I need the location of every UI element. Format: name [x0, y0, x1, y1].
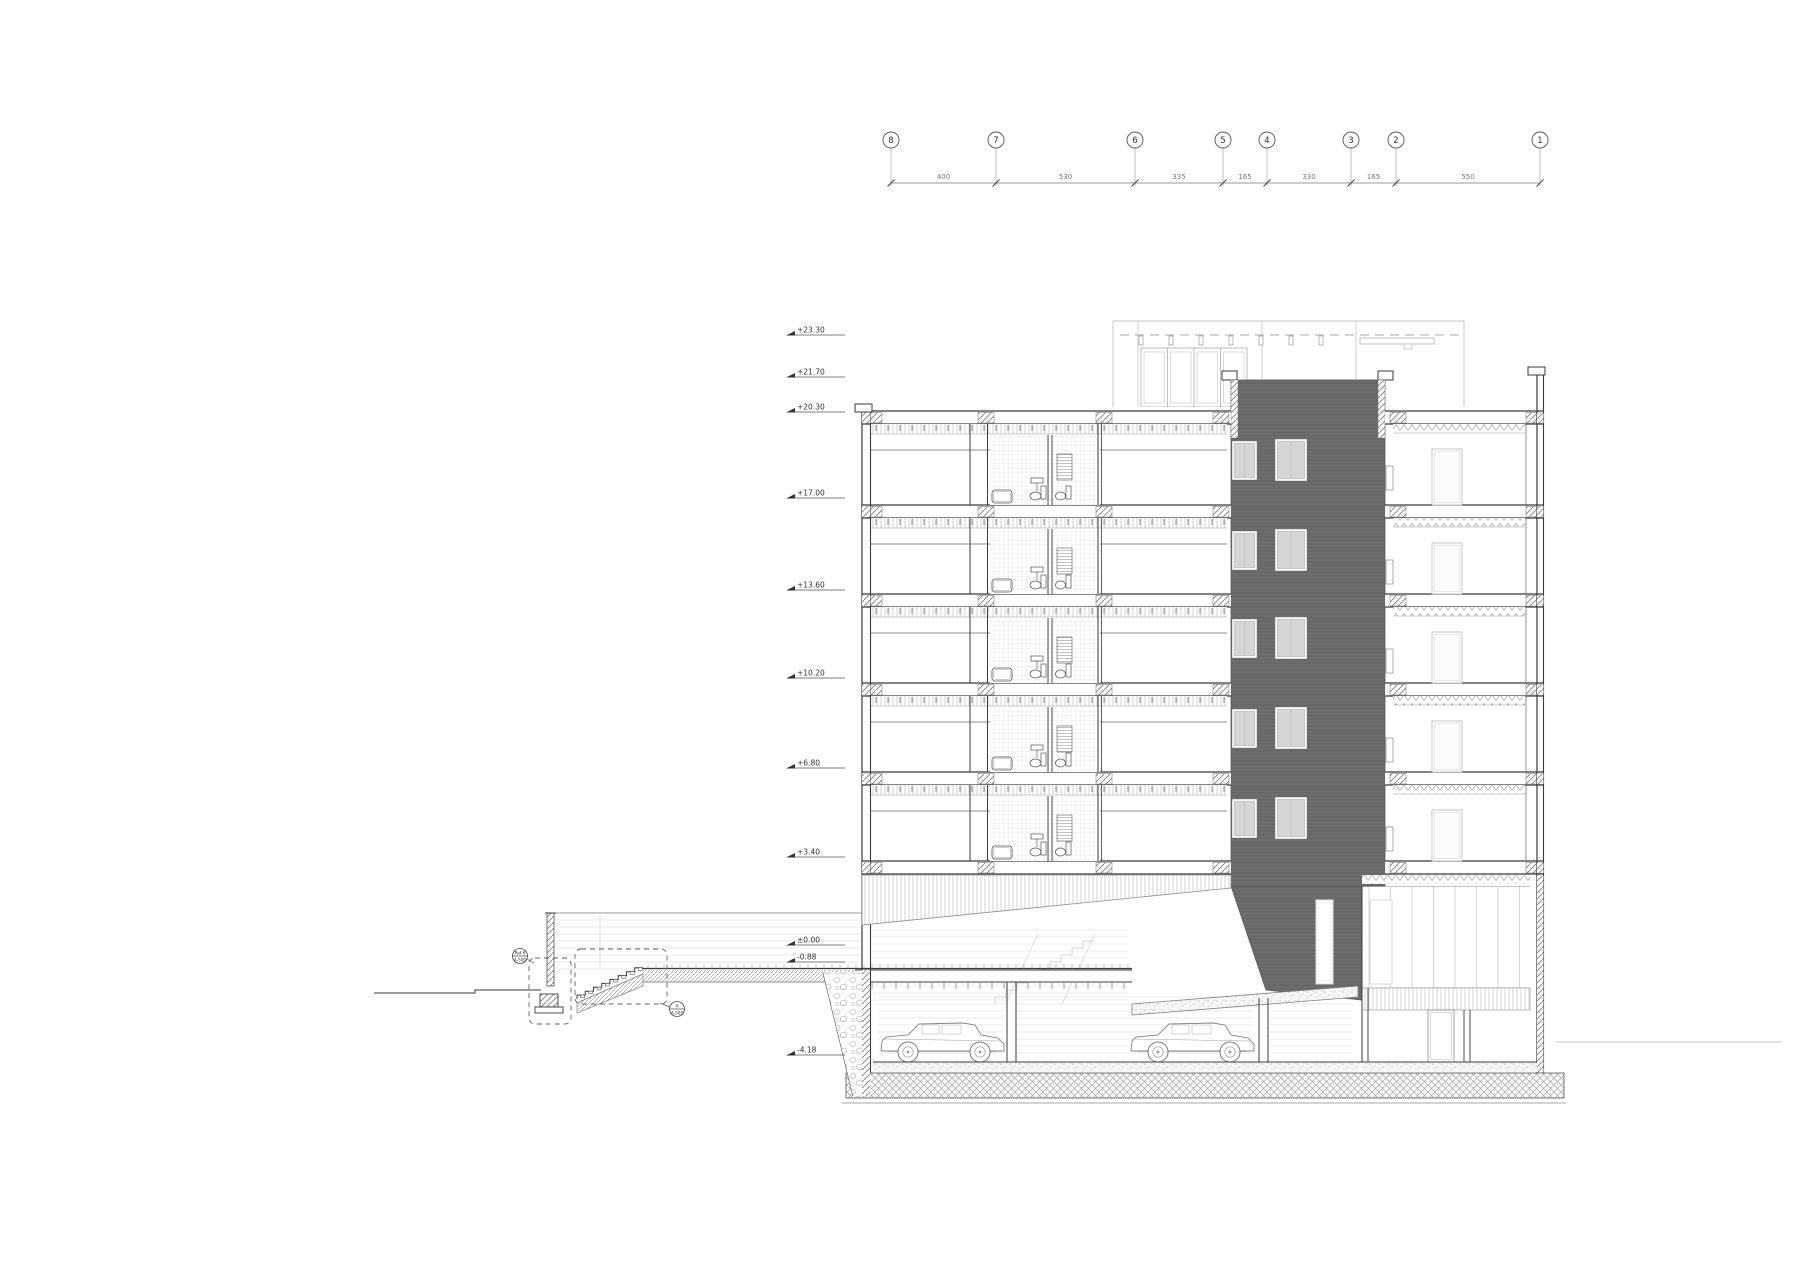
post-footing: [540, 994, 558, 1007]
elevation-label: +21.70: [797, 368, 825, 377]
level-arrow: [786, 586, 795, 591]
level-arrow: [786, 674, 795, 679]
slab-beam: [1213, 774, 1229, 785]
roof-railing-post: [1289, 336, 1293, 345]
toilet: [1041, 753, 1046, 766]
roof-railing-post: [1259, 336, 1263, 345]
level-arrow: [786, 408, 795, 413]
slab-beam: [1213, 507, 1229, 518]
washbasin: [1031, 745, 1043, 750]
basement-grille-band: [1362, 988, 1530, 1010]
marker-ref-top: A: [676, 1004, 679, 1009]
level-arrow: [786, 331, 795, 336]
parapet-cap: [855, 404, 872, 412]
radiator: [1057, 454, 1072, 480]
toilet: [1066, 575, 1071, 588]
level-arrow: [786, 941, 795, 946]
foundation-slab: [846, 1073, 1564, 1098]
grid-bubble-number: 3: [1348, 136, 1353, 146]
elevation-markers: +23.30+21.70+20.30+17.00+13.60+10.20+6.8…: [786, 326, 845, 1056]
radiator: [1057, 726, 1072, 752]
roof-railing-post: [1199, 336, 1203, 345]
elevation-label: ±0.00: [797, 936, 820, 945]
roof-railing-post: [1139, 336, 1143, 345]
marker-ref-bottom: A-500: [514, 958, 527, 963]
grid-axis: 87654321400530335165330165550: [883, 132, 1548, 187]
slab-beam: [1390, 863, 1406, 874]
ceiling-insulation: [1393, 518, 1525, 527]
parapet-cap: [1378, 371, 1393, 380]
grid-bubble-number: 7: [993, 136, 998, 146]
slab-beam: [1390, 413, 1406, 424]
core-side-window: [1386, 827, 1393, 851]
grid-bubble-number: 5: [1220, 136, 1225, 146]
site-entrance: Ref 6A-500AA-500: [374, 913, 685, 1024]
toilet: [1041, 664, 1046, 677]
washbasin: [1031, 478, 1043, 483]
elevation-label: +17.00: [797, 489, 825, 498]
grid-dimension: 530: [1059, 173, 1072, 181]
grid-dimension: 400: [937, 173, 950, 181]
level-arrow: [786, 958, 795, 963]
level-arrow: [786, 853, 795, 858]
parapet-cap: [1222, 371, 1237, 380]
elevation-label: +20.30: [797, 403, 825, 412]
slab-beam: [1096, 507, 1112, 518]
roof-railing-post: [1169, 336, 1173, 345]
core-wall-ground: [1231, 886, 1362, 1000]
lobby-door: [1370, 900, 1392, 984]
elevation-label: -4.18: [797, 1046, 817, 1055]
toilet: [1066, 486, 1071, 499]
room-door: [1432, 810, 1462, 861]
detail-marker-ref6: Ref 6A-500: [513, 949, 528, 964]
parked-car: [1131, 1023, 1254, 1062]
grid-dimension: 165: [1238, 173, 1251, 181]
room-door: [1432, 449, 1462, 505]
toilet: [1066, 842, 1071, 855]
bathtub: [992, 846, 1012, 859]
slab-beam: [1390, 507, 1406, 518]
elevation-label: +13.60: [797, 581, 825, 590]
room-door: [1432, 721, 1462, 772]
bathtub: [992, 490, 1012, 503]
radiator: [1057, 637, 1072, 663]
ceiling-band: [870, 696, 1227, 706]
core-side-window: [1386, 738, 1393, 762]
ceiling-insulation: [1393, 607, 1525, 616]
grid-dimension: 335: [1172, 173, 1185, 181]
slab-beam: [978, 863, 994, 874]
elevation-label: -0.88: [797, 953, 817, 962]
ceiling-insulation: [1393, 696, 1525, 705]
ceiling-band: [870, 518, 1227, 528]
sloped-soffit: [862, 875, 1231, 925]
building-section-drawing: Ref 6A-500AA-500876543214005303351653301…: [0, 0, 1796, 1262]
drawing-root: Ref 6A-500AA-500876543214005303351653301…: [374, 132, 1782, 1103]
elevation-label: +6.80: [797, 759, 820, 768]
ground-line-left: [374, 990, 541, 993]
ceiling-band: [870, 785, 1227, 795]
washbasin: [1031, 567, 1043, 572]
core-entry-door: [1316, 900, 1333, 984]
ceiling-band: [870, 424, 1227, 434]
marker-ref-bottom: A-500: [671, 1011, 684, 1016]
roof-railing-post: [1319, 336, 1323, 345]
ceiling-band: [870, 607, 1227, 617]
slab-beam: [1390, 596, 1406, 607]
level-arrow: [786, 494, 795, 499]
grid-dimension: 165: [1367, 173, 1380, 181]
core-side-window: [1386, 466, 1393, 490]
washbasin: [1031, 834, 1043, 839]
elevation-label: +10.20: [797, 669, 825, 678]
room-door: [1432, 543, 1462, 594]
level-arrow: [786, 764, 795, 769]
elevation-label: +23.30: [797, 326, 825, 335]
toilet: [1066, 664, 1071, 677]
rubble-backfill: [823, 972, 862, 1096]
roof-railing-post: [1229, 336, 1233, 345]
slab-beam: [978, 685, 994, 696]
slab-beam: [1213, 413, 1229, 424]
slab-beam: [1096, 596, 1112, 607]
grid-bubble-number: 4: [1264, 136, 1269, 146]
bathtub: [992, 579, 1012, 592]
fence-post: [547, 913, 554, 986]
core-side-window: [1386, 649, 1393, 673]
basement-garage: [823, 886, 1566, 1103]
ceiling-insulation: [1393, 785, 1525, 794]
grid-dimension: 550: [1461, 173, 1474, 181]
radiator: [1057, 548, 1072, 574]
toilet: [1041, 486, 1046, 499]
bathtub: [992, 757, 1012, 770]
toilet: [1041, 575, 1046, 588]
lobby-ceiling-insulation: [1362, 875, 1530, 884]
slab-beam: [1096, 774, 1112, 785]
basement-door: [1428, 1010, 1454, 1062]
slab-beam: [978, 507, 994, 518]
core-side-window: [1386, 560, 1393, 584]
parapet-cap: [1528, 367, 1545, 375]
bathtub: [992, 668, 1012, 681]
slab-beam: [978, 774, 994, 785]
grid-bubble-number: 6: [1132, 136, 1137, 146]
core-wall: [1222, 371, 1393, 1000]
marker-ref-top: Ref 6: [515, 951, 526, 956]
toilet: [1066, 753, 1071, 766]
slab-beam: [1213, 685, 1229, 696]
slab-beam: [1096, 863, 1112, 874]
roof-antenna-bar: [1360, 338, 1434, 344]
section-drawing-canvas: Ref 6A-500AA-500876543214005303351653301…: [0, 0, 1796, 1262]
grid-bubble-number: 1: [1537, 136, 1542, 146]
room-door: [1432, 632, 1462, 683]
section-marker-a: AA-500: [670, 1002, 685, 1017]
slab-beam: [1096, 413, 1112, 424]
slab-beam: [978, 413, 994, 424]
slab-beam: [1213, 596, 1229, 607]
level-arrow: [786, 1051, 795, 1056]
slab-beam: [1390, 774, 1406, 785]
grid-bubble-number: 8: [888, 136, 893, 146]
toilet: [1041, 842, 1046, 855]
driveway-ramp: [1132, 986, 1358, 1015]
elevation-label: +3.40: [797, 848, 820, 857]
level-arrow: [786, 373, 795, 378]
floor-screed: [873, 1063, 1360, 1072]
grid-bubble-number: 2: [1393, 136, 1398, 146]
parked-car: [881, 1023, 1004, 1062]
grid-dimension: 330: [1302, 173, 1315, 181]
slab-beam: [978, 596, 994, 607]
slab-beam: [1213, 863, 1229, 874]
slab-beam: [1096, 685, 1112, 696]
slab-beam: [1390, 685, 1406, 696]
ceiling-insulation: [1393, 424, 1525, 433]
washbasin: [1031, 656, 1043, 661]
radiator: [1057, 815, 1072, 841]
